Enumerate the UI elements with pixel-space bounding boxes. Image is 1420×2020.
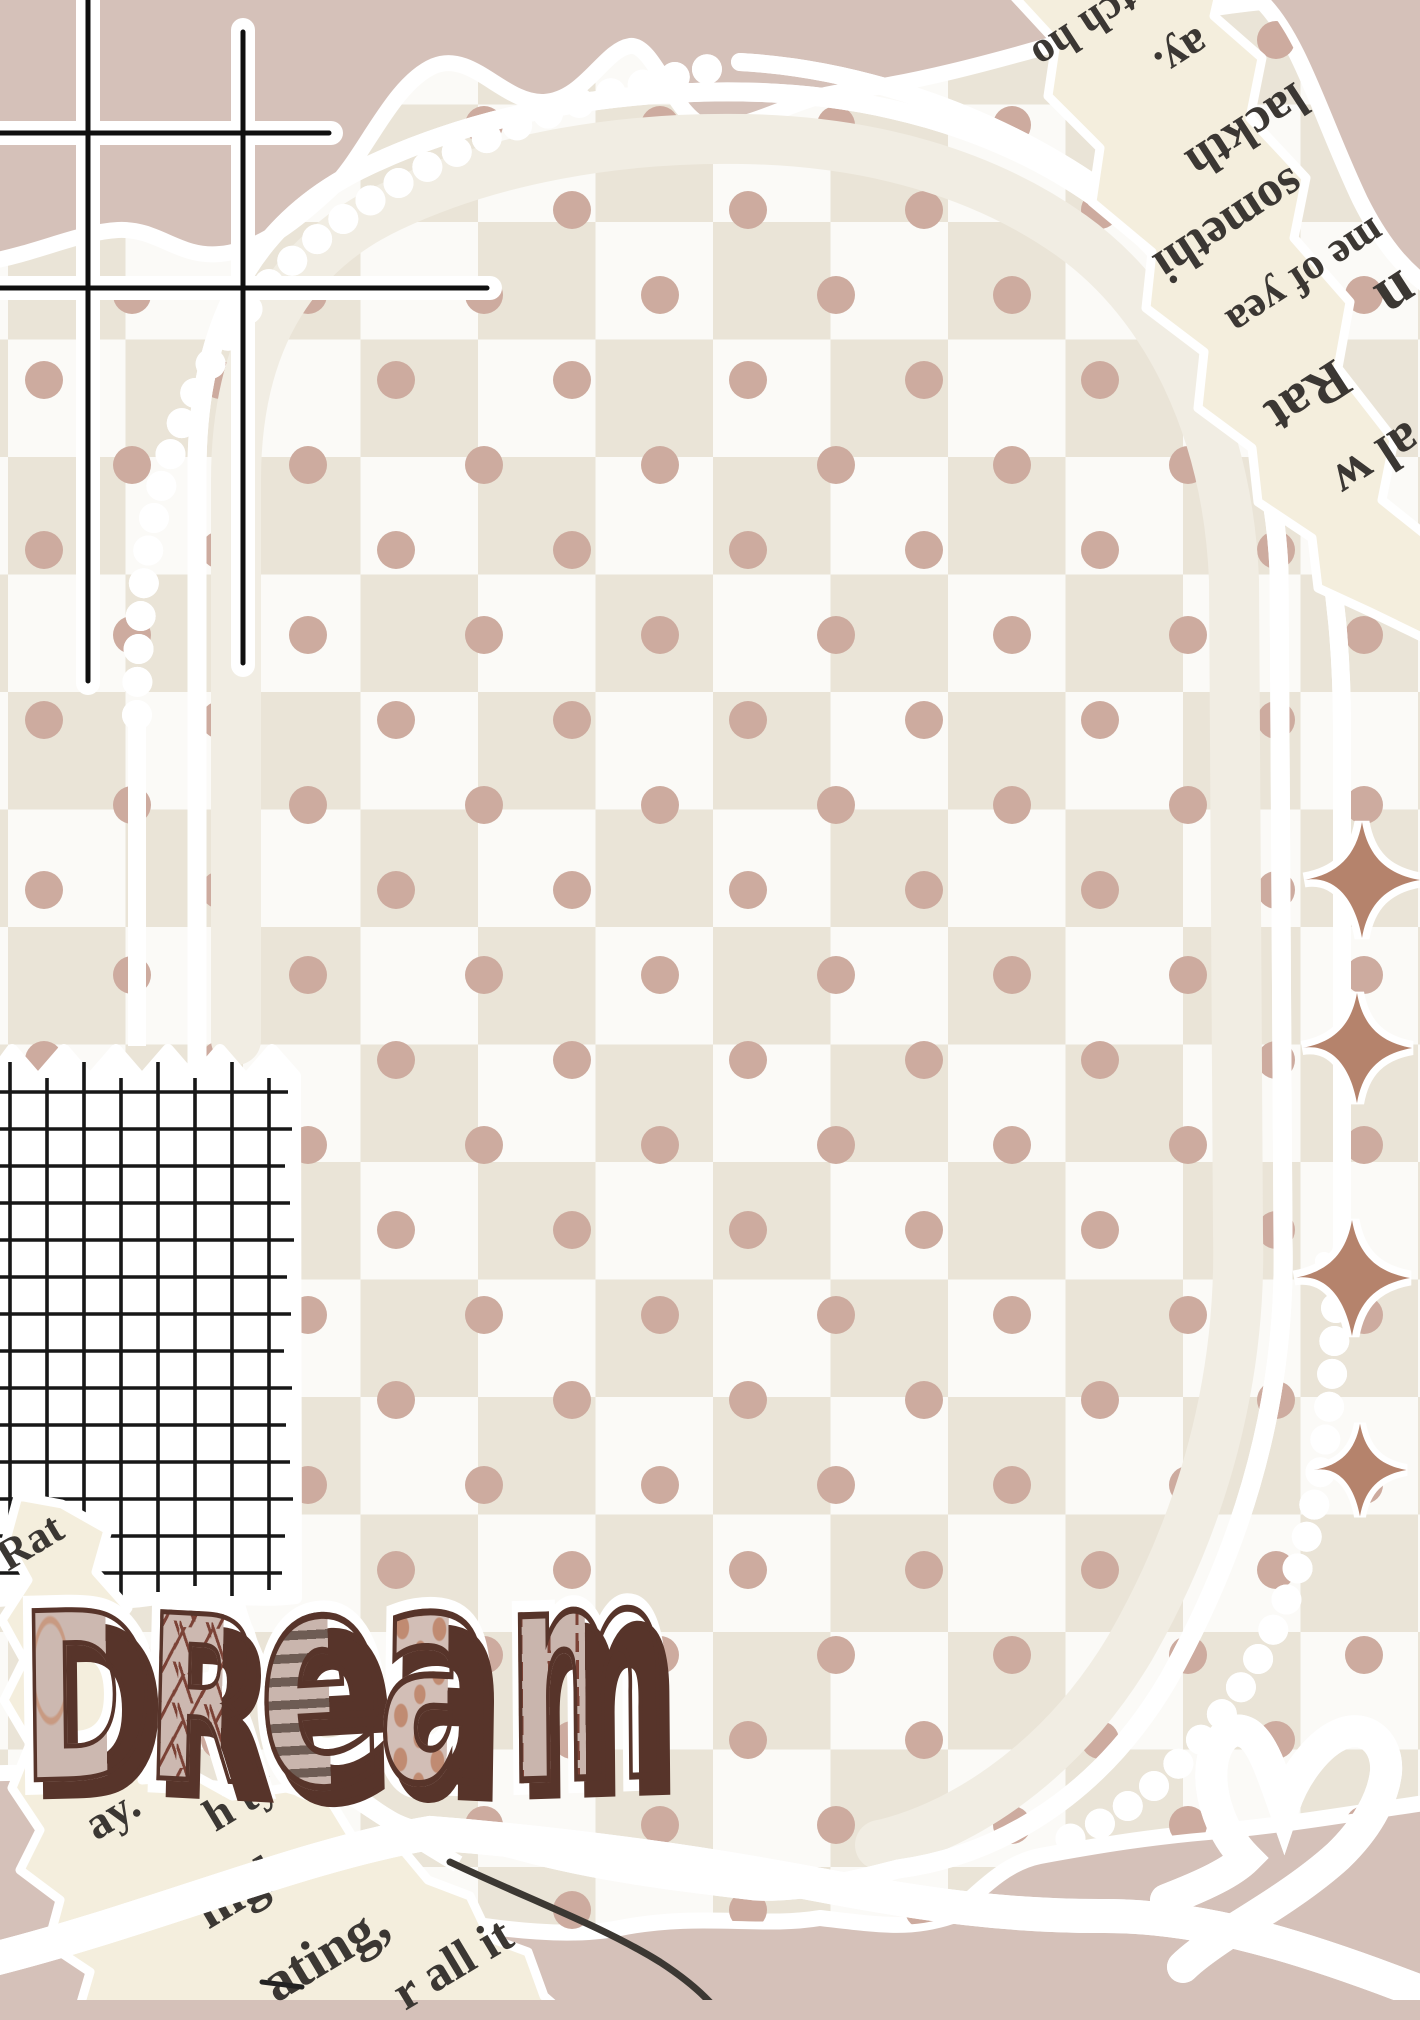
scrapbook-poster: { "canvas": {"width": 1420, "height": 20…: [0, 0, 1420, 2000]
dream-letter: a: [377, 1554, 450, 1797]
dream-letter: D: [18, 1578, 108, 1820]
dream-letter: e: [256, 1560, 332, 1804]
small-ink-dash: [262, 1982, 302, 1987]
dream-letter: R: [143, 1578, 225, 1822]
dream-letter: m: [506, 1555, 586, 1798]
dream-sticker: DReam DReam DReam: [2, 1556, 702, 1816]
dream-word: DReam: [2, 1556, 622, 1894]
